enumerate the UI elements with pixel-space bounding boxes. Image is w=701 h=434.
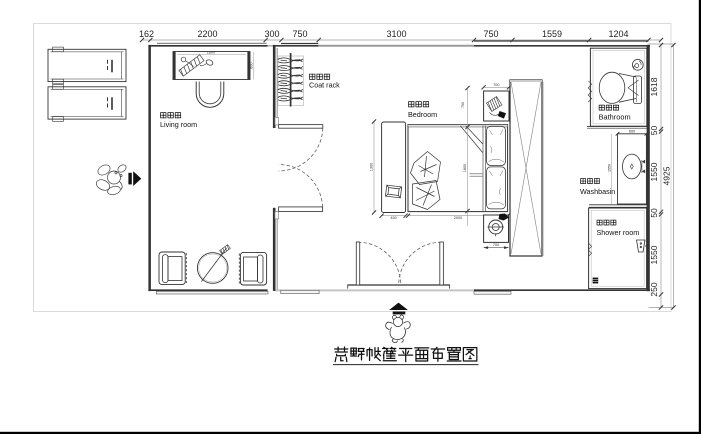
svg-text:Shower room: Shower room: [597, 228, 640, 237]
svg-text:1550: 1550: [649, 245, 659, 264]
svg-text:1559: 1559: [542, 29, 562, 39]
svg-text:Coat rack: Coat rack: [309, 81, 340, 90]
svg-text:Living room: Living room: [160, 120, 197, 129]
svg-text:1300: 1300: [369, 163, 373, 171]
svg-text:1204: 1204: [608, 29, 628, 39]
svg-text:162: 162: [139, 29, 154, 39]
svg-text:Washbasin: Washbasin: [580, 187, 615, 196]
svg-text:4925: 4925: [662, 166, 672, 185]
svg-text:750: 750: [483, 29, 498, 39]
svg-text:1550: 1550: [608, 164, 612, 172]
svg-text:1618: 1618: [649, 77, 659, 96]
svg-text:Bedroom: Bedroom: [408, 110, 437, 119]
svg-text:300: 300: [264, 29, 279, 39]
svg-text:700: 700: [493, 243, 499, 247]
svg-text:1550: 1550: [649, 162, 659, 181]
svg-text:2000: 2000: [454, 216, 462, 220]
svg-text:450: 450: [390, 216, 396, 220]
svg-text:700: 700: [461, 102, 465, 108]
svg-text:250: 250: [649, 282, 659, 296]
svg-text:600: 600: [629, 130, 635, 134]
svg-text:50: 50: [649, 208, 659, 218]
svg-text:750: 750: [292, 29, 307, 39]
svg-text:1800: 1800: [463, 164, 467, 172]
svg-text:Bathroom: Bathroom: [599, 113, 631, 122]
svg-text:50: 50: [649, 126, 659, 136]
svg-text:1800: 1800: [207, 51, 215, 55]
svg-text:2200: 2200: [197, 29, 217, 39]
svg-text:700: 700: [493, 83, 499, 87]
svg-text:3100: 3100: [386, 29, 406, 39]
svg-text:600: 600: [250, 63, 254, 69]
